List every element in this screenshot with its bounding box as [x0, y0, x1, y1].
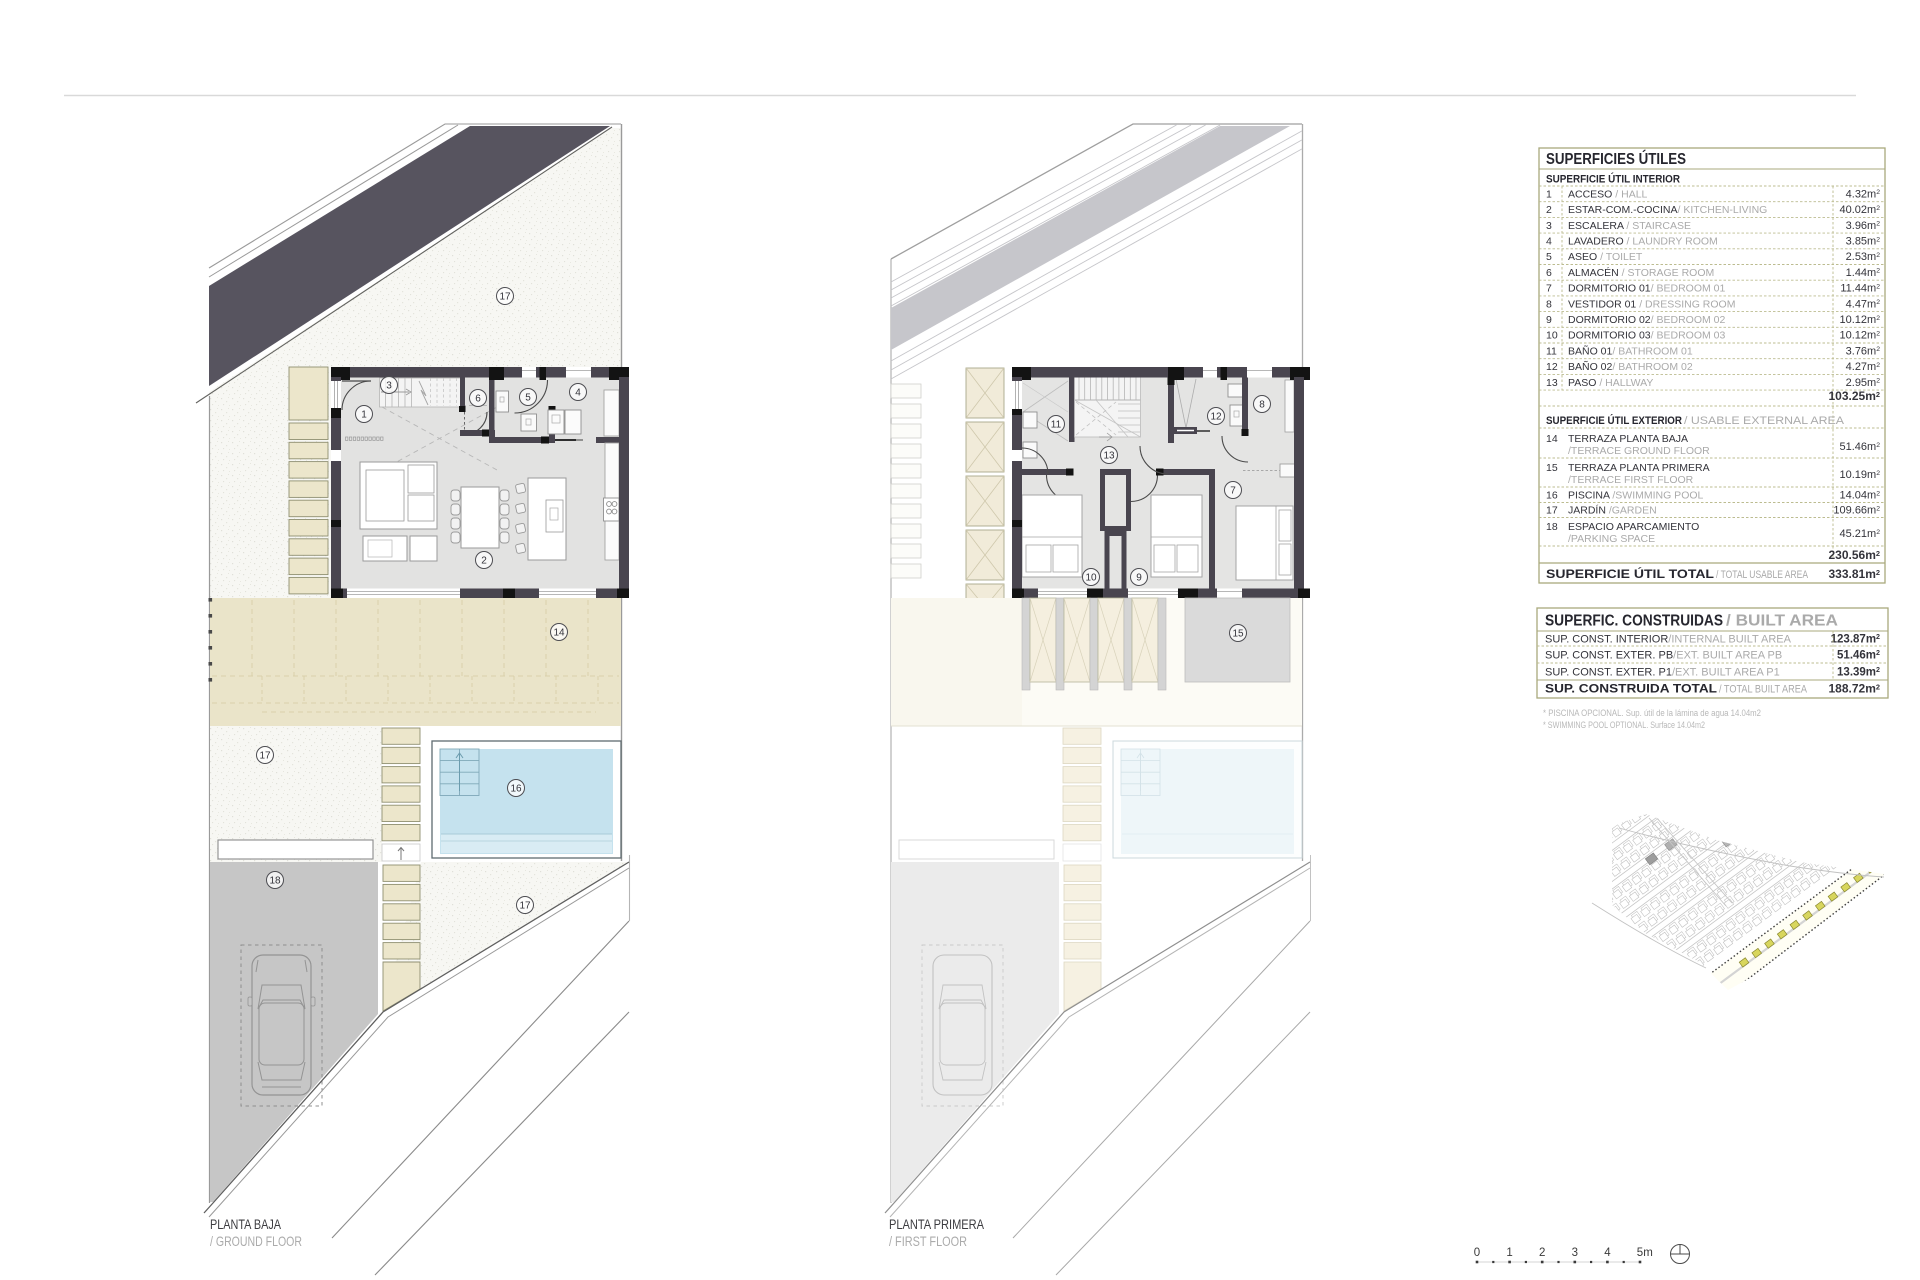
svg-text:11: 11 — [1546, 345, 1557, 357]
svg-text:/ FIRST FLOOR: / FIRST FLOOR — [889, 1233, 967, 1249]
svg-text:5: 5 — [1546, 251, 1552, 263]
svg-text:17: 17 — [259, 751, 271, 762]
svg-text:SUP. CONSTRUIDA TOTAL: SUP. CONSTRUIDA TOTAL — [1545, 684, 1717, 696]
svg-text:4: 4 — [1604, 1247, 1611, 1259]
svg-text:1: 1 — [361, 410, 367, 421]
svg-text:PASO / HALLWAY: PASO / HALLWAY — [1568, 377, 1653, 389]
svg-text:3.85m2: 3.85m2 — [1846, 236, 1881, 248]
svg-text:103.25m2: 103.25m2 — [1829, 389, 1881, 403]
svg-text:SUP. CONST. INTERIOR/INTERNAL: SUP. CONST. INTERIOR/INTERNAL BUILT AREA — [1545, 633, 1792, 645]
svg-text:SUPERFICIE ÚTIL EXTERIOR: SUPERFICIE ÚTIL EXTERIOR — [1546, 414, 1682, 427]
svg-text:3: 3 — [1546, 220, 1552, 232]
svg-text:18: 18 — [1546, 521, 1558, 533]
svg-text:3.76m2: 3.76m2 — [1846, 345, 1881, 357]
svg-text:SUPERFICIE ÚTIL INTERIOR: SUPERFICIE ÚTIL INTERIOR — [1546, 173, 1680, 186]
svg-text:8: 8 — [1546, 298, 1552, 310]
svg-text:15: 15 — [1546, 462, 1558, 474]
svg-text:ASEO / TOILET: ASEO / TOILET — [1568, 251, 1643, 263]
svg-text:ALMACÉN / STORAGE ROOM: ALMACÉN / STORAGE ROOM — [1568, 266, 1714, 279]
svg-text:/TERRACE FIRST FLOOR: /TERRACE FIRST FLOOR — [1568, 474, 1694, 486]
svg-text:17: 17 — [499, 292, 511, 303]
svg-text:BAÑO 02/ BATHROOM 02: BAÑO 02/ BATHROOM 02 — [1568, 360, 1693, 373]
svg-text:16: 16 — [1546, 490, 1558, 502]
svg-text:SUP. CONST. EXTER. P1/EXT. BUI: SUP. CONST. EXTER. P1/EXT. BUILT AREA P1 — [1545, 666, 1780, 678]
svg-text:/ TOTAL USABLE AREA: / TOTAL USABLE AREA — [1716, 569, 1809, 581]
svg-text:SUPERFICIES ÚTILES: SUPERFICIES ÚTILES — [1546, 150, 1686, 168]
svg-text:ESPACIO APARCAMIENTO: ESPACIO APARCAMIENTO — [1568, 521, 1699, 533]
svg-text:1: 1 — [1506, 1247, 1512, 1259]
svg-text:123.87m2: 123.87m2 — [1831, 633, 1880, 645]
svg-text:14: 14 — [553, 628, 565, 639]
svg-text:13: 13 — [1546, 377, 1558, 389]
svg-text:PISCINA /SWIMMING POOL: PISCINA /SWIMMING POOL — [1568, 490, 1704, 502]
svg-text:13.39m2: 13.39m2 — [1837, 666, 1880, 678]
svg-text:45.21m2: 45.21m2 — [1840, 528, 1881, 540]
svg-text:/TERRACE GROUND FLOOR: /TERRACE GROUND FLOOR — [1568, 445, 1710, 457]
svg-text:8: 8 — [1259, 400, 1265, 411]
svg-text:1.44m2: 1.44m2 — [1846, 267, 1881, 279]
svg-text:10.12m2: 10.12m2 — [1840, 314, 1881, 326]
svg-text:3.96m2: 3.96m2 — [1846, 220, 1881, 232]
svg-text:/ GROUND FLOOR: / GROUND FLOOR — [210, 1233, 302, 1249]
svg-text:m: m — [1643, 1247, 1653, 1259]
svg-text:333.81m2: 333.81m2 — [1829, 567, 1881, 581]
svg-text:DORMITORIO 01/ BEDROOM 01: DORMITORIO 01/ BEDROOM 01 — [1568, 283, 1726, 295]
svg-text:LAVADERO / LAUNDRY ROOM: LAVADERO / LAUNDRY ROOM — [1568, 236, 1718, 248]
svg-text:/PARKING SPACE: /PARKING SPACE — [1568, 533, 1655, 545]
svg-text:2: 2 — [481, 556, 487, 567]
svg-text:230.56m2: 230.56m2 — [1829, 548, 1881, 562]
svg-text:10.12m2: 10.12m2 — [1840, 330, 1881, 342]
svg-text:16: 16 — [510, 784, 522, 795]
svg-text:4.47m2: 4.47m2 — [1846, 298, 1881, 310]
svg-text:10.19m2: 10.19m2 — [1840, 469, 1881, 481]
svg-text:51.46m2: 51.46m2 — [1837, 649, 1880, 661]
svg-text:ESTAR-COM.-COCINA/ KITCHEN-LIV: ESTAR-COM.-COCINA/ KITCHEN-LIVING — [1568, 204, 1767, 216]
svg-text:3: 3 — [1572, 1247, 1578, 1259]
svg-text:* SWIMMING POOL OPTIONAL. Surf: * SWIMMING POOL OPTIONAL. Surface 14.04m… — [1543, 720, 1705, 730]
svg-text:17: 17 — [519, 901, 531, 912]
svg-text:2: 2 — [1539, 1247, 1545, 1259]
svg-text:4.32m2: 4.32m2 — [1846, 188, 1881, 200]
svg-text:18: 18 — [269, 876, 281, 887]
svg-text:* PISCINA OPCIONAL. Sup. útil: * PISCINA OPCIONAL. Sup. útil de la lámi… — [1543, 708, 1761, 718]
svg-text:4.27m2: 4.27m2 — [1846, 361, 1881, 373]
svg-text:6: 6 — [1546, 267, 1552, 279]
svg-text:4: 4 — [1546, 236, 1552, 248]
svg-text:/ TOTAL BUILT AREA: / TOTAL BUILT AREA — [1719, 684, 1808, 696]
svg-text:JARDÍN /GARDEN: JARDÍN /GARDEN — [1568, 504, 1657, 517]
svg-text:PLANTA PRIMERA: PLANTA PRIMERA — [889, 1216, 985, 1232]
svg-text:6: 6 — [475, 394, 481, 405]
svg-text:BAÑO 01/ BATHROOM 01: BAÑO 01/ BATHROOM 01 — [1568, 344, 1693, 357]
svg-text:TERRAZA PLANTA PRIMERA: TERRAZA PLANTA PRIMERA — [1568, 462, 1710, 474]
svg-text:9: 9 — [1546, 314, 1552, 326]
svg-text:11.44m2: 11.44m2 — [1840, 283, 1880, 295]
svg-text:DORMITORIO 02/ BEDROOM 02: DORMITORIO 02/ BEDROOM 02 — [1568, 314, 1726, 326]
svg-text:12: 12 — [1546, 361, 1558, 373]
svg-text:7: 7 — [1230, 486, 1236, 497]
svg-text:2: 2 — [1546, 204, 1552, 216]
svg-text:0: 0 — [1474, 1247, 1480, 1259]
svg-text:SUPERFICIE ÚTIL TOTAL: SUPERFICIE ÚTIL TOTAL — [1546, 568, 1714, 581]
svg-text:2.95m2: 2.95m2 — [1846, 377, 1881, 389]
svg-text:17: 17 — [1546, 505, 1558, 517]
svg-text:7: 7 — [1546, 283, 1552, 295]
svg-text:ESCALERA / STAIRCASE: ESCALERA / STAIRCASE — [1568, 220, 1691, 232]
svg-text:10: 10 — [1546, 330, 1558, 342]
svg-text:SUPERFIC. CONSTRUIDAS: SUPERFIC. CONSTRUIDAS — [1545, 613, 1723, 630]
svg-text:10: 10 — [1085, 573, 1097, 584]
svg-text:2.53m2: 2.53m2 — [1846, 251, 1881, 263]
svg-text:PLANTA BAJA: PLANTA BAJA — [210, 1216, 282, 1232]
svg-text:12: 12 — [1210, 412, 1222, 423]
svg-text:/ BUILT AREA: / BUILT AREA — [1726, 613, 1838, 630]
svg-text:5: 5 — [525, 393, 531, 404]
svg-text:SUP. CONST. EXTER. PB/EXT. BUI: SUP. CONST. EXTER. PB/EXT. BUILT AREA PB — [1545, 649, 1782, 661]
svg-text:109.66m2: 109.66m2 — [1833, 505, 1880, 517]
svg-text:TERRAZA PLANTA BAJA: TERRAZA PLANTA BAJA — [1568, 433, 1688, 445]
svg-text:4: 4 — [575, 388, 581, 399]
svg-text:14.04m2: 14.04m2 — [1840, 490, 1881, 502]
svg-text:VESTIDOR 01 / DRESSING ROOM: VESTIDOR 01 / DRESSING ROOM — [1568, 298, 1735, 310]
svg-text:51.46m2: 51.46m2 — [1840, 441, 1881, 453]
svg-text:3: 3 — [386, 381, 392, 392]
svg-text:1: 1 — [1546, 188, 1552, 200]
svg-text:11: 11 — [1051, 420, 1062, 431]
svg-text:14: 14 — [1546, 433, 1558, 445]
svg-text:188.72m2: 188.72m2 — [1829, 682, 1881, 696]
svg-text:ACCESO / HALL: ACCESO / HALL — [1568, 188, 1648, 200]
svg-text:40.02m2: 40.02m2 — [1840, 204, 1881, 216]
svg-text:DORMITORIO 03/ BEDROOM 03: DORMITORIO 03/ BEDROOM 03 — [1568, 330, 1726, 342]
svg-text:13: 13 — [1103, 451, 1115, 462]
svg-text:15: 15 — [1232, 629, 1244, 640]
svg-text:/ USABLE EXTERNAL AREA: / USABLE EXTERNAL AREA — [1684, 415, 1845, 427]
svg-text:9: 9 — [1136, 573, 1142, 584]
